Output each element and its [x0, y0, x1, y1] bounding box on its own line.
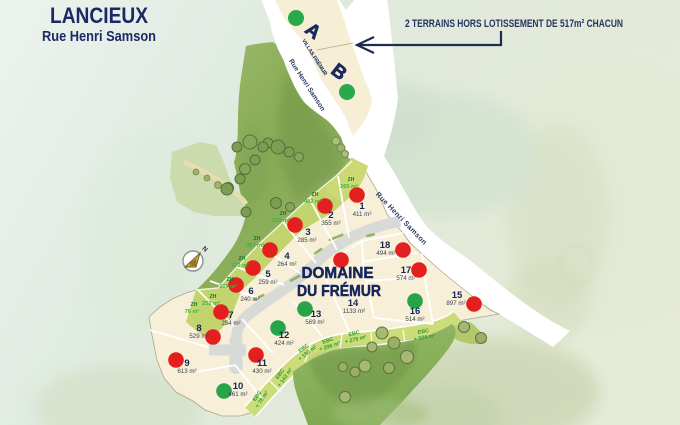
- svg-text:529 m²: 529 m²: [189, 333, 208, 340]
- svg-text:2 TERRAINS HORS LOTISSEMENT DE: 2 TERRAINS HORS LOTISSEMENT DE 517m² CHA…: [405, 18, 623, 30]
- svg-text:240 m²: 240 m²: [240, 296, 259, 303]
- svg-text:Rue Henri Samson: Rue Henri Samson: [42, 29, 156, 45]
- svg-text:322 m²: 322 m²: [272, 217, 290, 224]
- svg-text:897 m²: 897 m²: [446, 300, 465, 307]
- svg-text:DOMAINE: DOMAINE: [302, 265, 374, 282]
- svg-text:ZH: ZH: [312, 192, 319, 198]
- svg-text:355 m²: 355 m²: [321, 220, 340, 227]
- svg-text:461 m²: 461 m²: [228, 391, 247, 398]
- svg-text:LANCIEUX: LANCIEUX: [50, 3, 148, 28]
- svg-text:252 m²: 252 m²: [202, 300, 220, 307]
- svg-text:ZH: ZH: [254, 236, 261, 242]
- svg-text:ZH: ZH: [280, 211, 287, 217]
- svg-text:1133 m²: 1133 m²: [343, 308, 365, 315]
- svg-text:494 m²: 494 m²: [376, 250, 395, 257]
- svg-text:514 m²: 514 m²: [405, 316, 424, 323]
- svg-text:254 m²: 254 m²: [221, 320, 240, 327]
- svg-text:372 m²: 372 m²: [231, 262, 249, 269]
- svg-text:613 m²: 613 m²: [177, 368, 196, 375]
- svg-text:ZH: ZH: [227, 277, 234, 283]
- svg-text:ZH: ZH: [210, 294, 217, 300]
- svg-text:402 m²: 402 m²: [304, 198, 322, 205]
- svg-text:424 m²: 424 m²: [274, 340, 293, 347]
- svg-text:369 m²: 369 m²: [219, 283, 237, 290]
- svg-text:430 m²: 430 m²: [252, 368, 271, 375]
- svg-text:ZH: ZH: [239, 256, 246, 262]
- svg-text:DU FRÉMUR: DU FRÉMUR: [297, 283, 381, 300]
- svg-text:ZH: ZH: [191, 302, 198, 308]
- svg-text:457 m²: 457 m²: [246, 242, 264, 249]
- svg-text:569 m²: 569 m²: [305, 319, 324, 326]
- svg-text:259 m²: 259 m²: [258, 279, 277, 286]
- svg-text:ZH: ZH: [348, 177, 355, 183]
- svg-text:265 m²: 265 m²: [340, 183, 358, 190]
- svg-text:76 m²: 76 m²: [185, 308, 200, 315]
- svg-text:411 m²: 411 m²: [353, 211, 372, 218]
- svg-text:264 m²: 264 m²: [277, 261, 296, 268]
- svg-text:285 m²: 285 m²: [297, 237, 316, 244]
- svg-text:574 m²: 574 m²: [396, 275, 415, 282]
